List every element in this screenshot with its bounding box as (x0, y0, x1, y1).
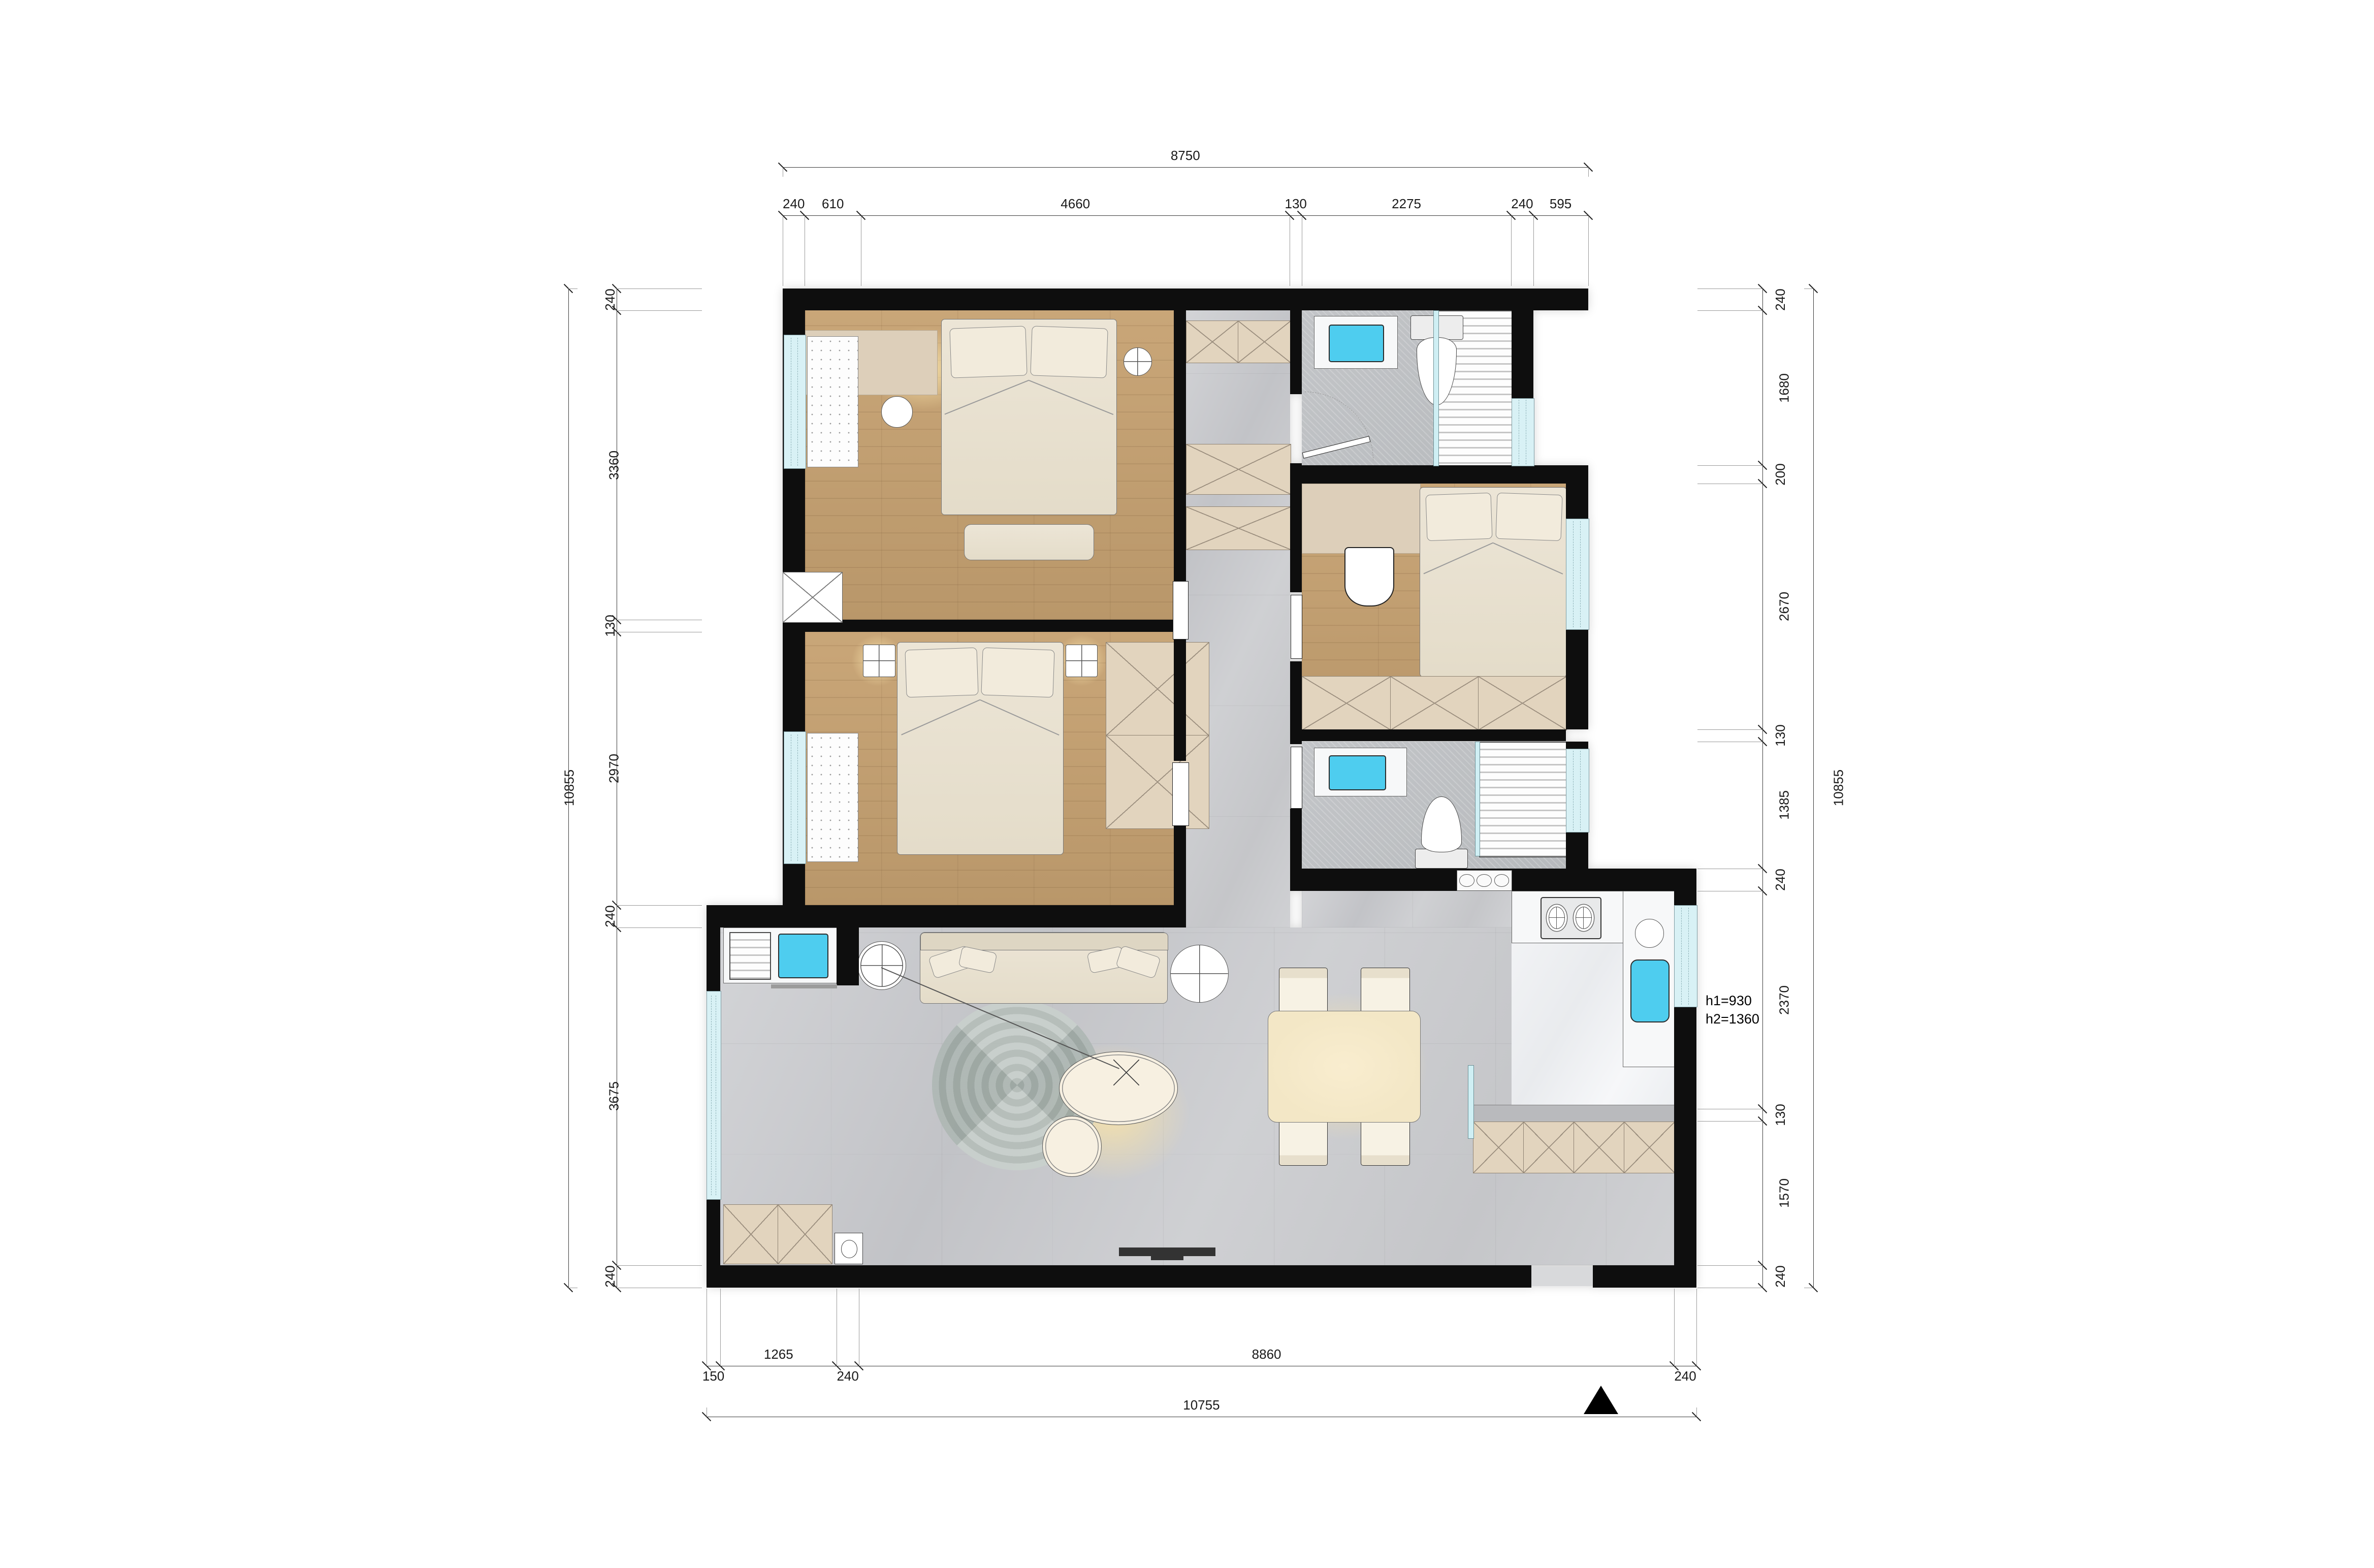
bedroom3-wardrobe-c (1478, 676, 1567, 730)
dim-label: 1385 (1776, 790, 1792, 820)
living-cabinet-a (723, 1204, 779, 1264)
dim-label: 240 (602, 1265, 618, 1287)
wall-kitchen-east-a (1674, 891, 1696, 905)
dim-label: 8860 (1252, 1347, 1281, 1362)
floor-plan-canvas: h1=930 h2=1360 8750240610466013022752405… (0, 0, 2374, 1568)
dim-label: 10855 (1831, 770, 1847, 806)
kitchen-front-floor (1302, 891, 1511, 927)
bar-cabinet-2 (1523, 1122, 1575, 1173)
window-bedroom3-east (1566, 519, 1589, 630)
dim-label: 130 (1773, 1104, 1788, 1126)
coffee-table-small (1042, 1116, 1101, 1177)
wall-top-right (1533, 289, 1588, 310)
dining-chair-4 (1361, 1115, 1409, 1166)
window-living-west (707, 991, 721, 1200)
dim-label: 130 (1285, 196, 1306, 212)
kitchen-stove (1541, 897, 1601, 940)
dim-label: 2970 (606, 754, 622, 783)
wall-bottom-east (1593, 1265, 1696, 1287)
dim-label: 2670 (1776, 592, 1792, 621)
window-kitchen-east (1674, 905, 1697, 1007)
bedroom2-curtain (807, 733, 859, 862)
wall-top (783, 289, 1533, 310)
wall-corridor-east-c (1290, 661, 1302, 744)
bathroom1-shower-glass (1433, 310, 1438, 466)
dim-label: 240 (1773, 869, 1788, 891)
kitchen-sink (1630, 959, 1669, 1022)
bottom-overall-chain: 10755 (707, 1397, 1696, 1417)
dim-label: 240 (1674, 1368, 1696, 1384)
wall-bottom-west (707, 1265, 1531, 1287)
bar-cabinet-3 (1574, 1122, 1625, 1173)
left-detail-chain: 240336013029702403675240 (597, 289, 618, 1288)
dim-label: 240 (602, 289, 618, 310)
dim-label: 610 (822, 196, 844, 212)
dim-label: 3360 (606, 451, 622, 480)
bathroom2-shower-glass (1475, 742, 1480, 857)
note-h1: h1=930 (1706, 991, 1759, 1010)
note-h2: h2=1360 (1706, 1010, 1759, 1028)
bottom-detail-chain: 15012652408860240 (707, 1346, 1696, 1366)
master-bench (964, 524, 1094, 560)
dining-chair-3 (1279, 1115, 1328, 1166)
window-master-west (784, 335, 806, 469)
bathroom2-toilet (1415, 796, 1466, 868)
counter-height-note: h1=930 h2=1360 (1706, 991, 1759, 1028)
wall-wing-east-a (1566, 484, 1588, 519)
wall-bath1-south (1290, 465, 1588, 484)
burner-right (1576, 907, 1592, 929)
dim-label: 1680 (1776, 373, 1792, 403)
corridor-floor (1186, 310, 1290, 927)
dim-label: 240 (1773, 289, 1788, 310)
wall-kitchen-east-b (1674, 1006, 1696, 1265)
dim-label: 240 (783, 196, 805, 212)
tv-stand (1151, 1256, 1183, 1260)
entry-threshold (1531, 1267, 1593, 1286)
wall-wing-east-b (1566, 629, 1588, 729)
right-detail-chain: 24016802002670130138524023701301570240 (1762, 289, 1783, 1288)
master-pillow-left (950, 326, 1028, 378)
wall-wing-bath2 (1302, 729, 1566, 742)
bedroom3-chair (1344, 547, 1394, 606)
bathroom2-shower (1479, 742, 1568, 858)
window-bath2-east (1566, 749, 1589, 833)
bedroom3-bed (1420, 487, 1567, 677)
bar-cabinet-4 (1624, 1122, 1675, 1173)
bedroom2-bed (897, 642, 1064, 855)
wall-bedrooms-east-c (1174, 822, 1186, 905)
bedroom2-wardrobe-top (1106, 642, 1209, 736)
tv (1119, 1247, 1215, 1256)
vent-ledge (1457, 870, 1512, 891)
side-table-right (1170, 945, 1228, 1003)
bedroom3-wardrobe-a (1302, 676, 1391, 730)
bedroom3-wardrobe-b (1390, 676, 1479, 730)
bedroom3-desk (1302, 484, 1421, 554)
dim-label: 240 (837, 1368, 858, 1384)
bedroom2-door (1172, 762, 1189, 826)
wall-bath2-east-a (1566, 742, 1588, 749)
corridor-cabinet-north-b (1238, 321, 1291, 363)
kitchen-pot (1635, 919, 1663, 947)
master-bed (941, 319, 1117, 515)
dim-label: 200 (1773, 463, 1788, 485)
bathroom2-door (1291, 747, 1303, 809)
kitchen-glass-partition (1468, 1065, 1474, 1139)
bedroom2-wardrobe-bottom (1106, 735, 1209, 829)
laundry-door-track (771, 984, 837, 988)
window-bath1-east (1512, 398, 1534, 466)
burner-left (1549, 907, 1565, 929)
right-overall-chain: 10855 (1813, 289, 1834, 1288)
wall-bath2-east-b (1566, 831, 1588, 869)
floor-plan (707, 289, 1696, 1288)
bedroom3-door (1291, 595, 1303, 658)
master-pillow-right (1030, 326, 1108, 378)
nightstand-left (863, 645, 895, 677)
bathroom1-sink (1329, 325, 1384, 363)
dining-table (1268, 1011, 1421, 1122)
arc-lamp-head (1113, 1060, 1139, 1085)
ceiling-light-symbol (1124, 347, 1152, 376)
wall-corridor-east-d (1290, 809, 1302, 869)
dim-label: 8750 (1171, 148, 1200, 164)
bar-cabinet-1 (1473, 1122, 1524, 1173)
dim-label: 150 (702, 1368, 724, 1384)
corridor-cabinet-mid (1186, 444, 1291, 495)
wall-bedrooms-east-a (1174, 310, 1186, 583)
structural-shaft (783, 572, 843, 623)
kitchen-bar-counter (1473, 1105, 1675, 1123)
wall-bedroom-divider (805, 620, 1174, 632)
side-table-lamp (857, 941, 906, 990)
dim-label: 3675 (606, 1082, 622, 1111)
dim-label: 240 (1511, 196, 1533, 212)
master-stool (881, 396, 913, 428)
dim-label: 130 (1773, 724, 1788, 746)
dim-label: 10755 (1183, 1397, 1220, 1413)
dim-label: 1265 (764, 1347, 793, 1362)
dim-label: 1570 (1776, 1178, 1792, 1208)
dim-label: 2275 (1392, 196, 1421, 212)
dim-label: 4660 (1061, 196, 1090, 212)
wall-living-north (707, 905, 1186, 927)
master-curtain (807, 336, 859, 467)
floor-appliance (835, 1233, 863, 1264)
dim-label: 10855 (562, 770, 578, 806)
wall-bath1-east (1512, 310, 1533, 398)
master-bedroom-door (1173, 581, 1189, 639)
sofa (920, 932, 1168, 1004)
wall-nook-stub (837, 927, 858, 985)
corridor-cabinet-north-a (1186, 321, 1239, 363)
window-bedroom2-west (784, 731, 806, 864)
washing-machine (729, 932, 771, 980)
bathroom2-sink (1329, 755, 1386, 790)
dim-label: 595 (1550, 196, 1571, 212)
corridor-cabinet-south (1186, 506, 1291, 550)
dim-label: 240 (1773, 1265, 1788, 1287)
nightstand-right (1066, 645, 1098, 677)
top-overall-chain: 8750 (783, 147, 1588, 168)
top-detail-chain: 24061046601302275240595 (783, 196, 1588, 216)
living-cabinet-b (778, 1204, 833, 1264)
dim-label: 2370 (1776, 985, 1792, 1015)
dim-label: 240 (602, 905, 618, 927)
laundry-sink (778, 934, 828, 978)
wall-corridor-east-a (1290, 310, 1302, 394)
left-overall-chain: 10855 (549, 289, 569, 1288)
